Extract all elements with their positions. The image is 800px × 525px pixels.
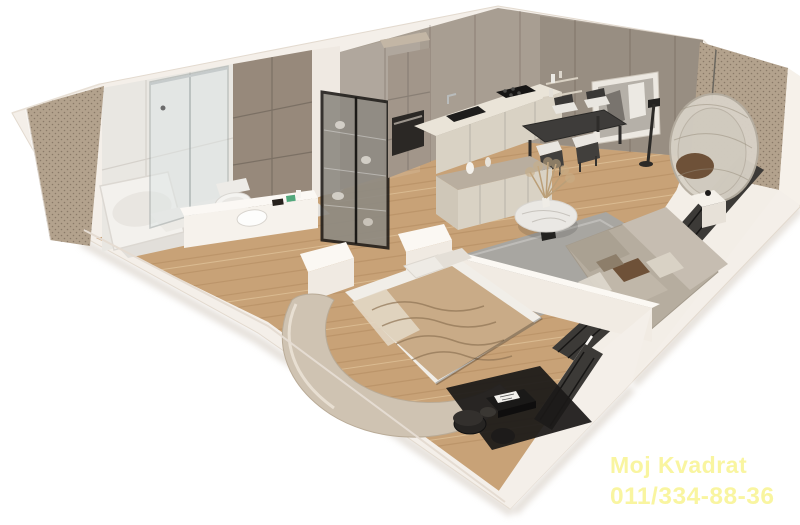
shelf-vase xyxy=(551,74,555,83)
scene-svg: Moj Kvadrat 011/334-88-36 xyxy=(0,0,800,525)
shelf-vase xyxy=(549,89,553,97)
cosmetics-green xyxy=(286,195,296,202)
side-table-decor xyxy=(705,190,711,196)
watermark-line2: 011/334-88-36 xyxy=(610,483,775,510)
shelf-vase xyxy=(559,71,562,78)
cosmetics-bottle xyxy=(296,190,301,198)
watermark-line1: Moj Kvadrat xyxy=(610,452,747,478)
floorplan-render: Moj Kvadrat 011/334-88-36 xyxy=(0,0,800,525)
cabinet-dish xyxy=(335,121,345,129)
cabinet-dish xyxy=(361,156,371,164)
egg-chair-cushion xyxy=(676,153,714,179)
glass-display-cabinet xyxy=(322,92,388,248)
pouf-small xyxy=(480,407,496,417)
island-vase xyxy=(485,157,491,167)
cabinet-dish xyxy=(332,192,344,200)
pouf xyxy=(491,428,515,444)
shower-head xyxy=(161,106,166,111)
cabinet-dish xyxy=(363,218,373,226)
island-vase xyxy=(466,162,474,174)
